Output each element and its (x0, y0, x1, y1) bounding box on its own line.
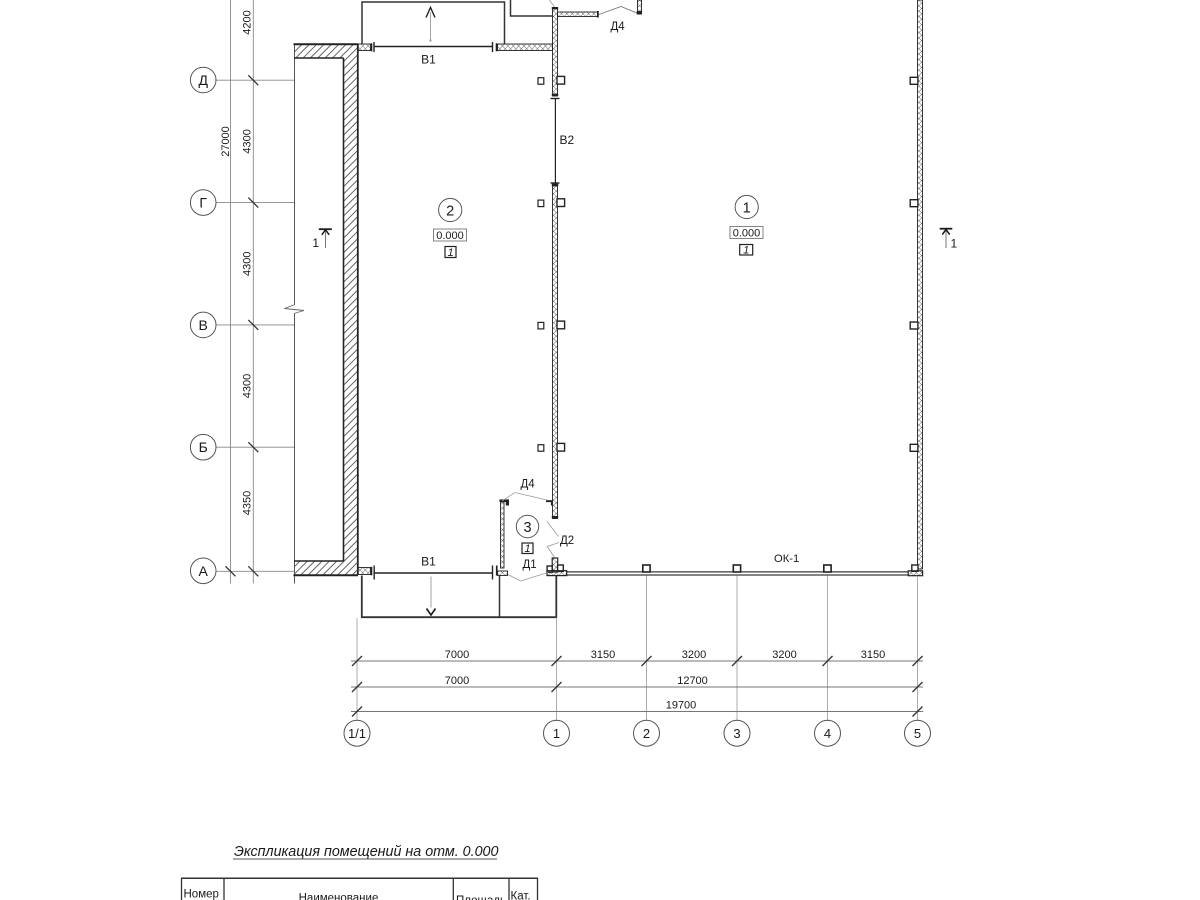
svg-text:7000: 7000 (445, 675, 469, 687)
svg-text:1: 1 (951, 237, 958, 251)
svg-text:3200: 3200 (682, 649, 706, 661)
svg-text:В1: В1 (421, 555, 436, 569)
svg-text:ОК-1: ОК-1 (774, 553, 799, 565)
svg-text:Экспликация помещений на отм.: Экспликация помещений на отм. 0.000 (234, 844, 498, 860)
svg-text:2: 2 (643, 726, 650, 741)
svg-text:1: 1 (553, 726, 560, 741)
svg-text:4: 4 (824, 726, 831, 741)
svg-text:В: В (199, 317, 208, 333)
svg-text:3200: 3200 (772, 649, 796, 661)
svg-text:12700: 12700 (677, 675, 708, 687)
svg-text:3: 3 (523, 520, 531, 536)
svg-text:3150: 3150 (591, 649, 615, 661)
svg-text:Д4: Д4 (611, 21, 626, 33)
svg-text:3: 3 (733, 726, 740, 741)
svg-text:Д1: Д1 (523, 559, 537, 571)
svg-text:Номер: Номер (184, 889, 219, 900)
svg-text:5: 5 (914, 726, 921, 741)
svg-text:2: 2 (446, 204, 454, 220)
svg-text:Д4: Д4 (521, 478, 536, 490)
svg-text:19700: 19700 (666, 700, 697, 712)
svg-text:4200: 4200 (242, 10, 254, 34)
svg-text:0.000: 0.000 (733, 228, 761, 240)
svg-text:1/1: 1/1 (348, 726, 366, 741)
svg-text:В2: В2 (560, 133, 575, 147)
svg-text:4300: 4300 (242, 251, 254, 275)
svg-text:27000: 27000 (220, 126, 232, 157)
svg-text:Д: Д (198, 72, 208, 88)
svg-text:4350: 4350 (242, 491, 254, 515)
svg-text:Б: Б (199, 439, 208, 455)
svg-text:4300: 4300 (242, 129, 254, 153)
svg-text:Г: Г (199, 195, 207, 211)
svg-text:4300: 4300 (242, 374, 254, 398)
svg-text:Кат.: Кат. (511, 890, 531, 900)
svg-text:1: 1 (743, 201, 751, 217)
svg-text:1: 1 (447, 247, 453, 259)
svg-text:Площадь: Площадь (456, 895, 506, 900)
svg-text:В1: В1 (421, 53, 436, 67)
svg-text:А: А (199, 563, 209, 579)
svg-text:1: 1 (312, 236, 319, 250)
svg-text:1: 1 (524, 543, 530, 555)
svg-text:3150: 3150 (861, 649, 885, 661)
svg-text:1: 1 (743, 245, 749, 257)
svg-text:Наименование: Наименование (299, 893, 379, 900)
svg-text:Д2: Д2 (560, 535, 574, 547)
svg-text:0.000: 0.000 (436, 230, 464, 242)
svg-text:7000: 7000 (445, 649, 469, 661)
